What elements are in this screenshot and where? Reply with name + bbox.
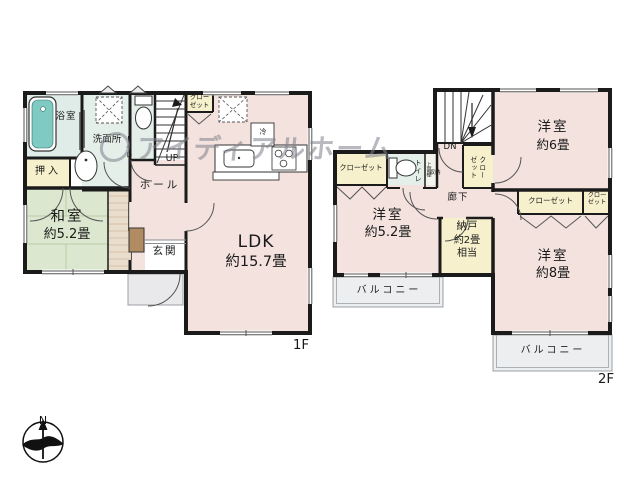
ldk-name: LDK xyxy=(196,231,316,253)
toilet-1f-icon xyxy=(135,96,152,129)
room8-name: 洋室 xyxy=(503,248,603,266)
closet-vert-col1: クロー xyxy=(477,149,486,187)
f1-ldk-floor xyxy=(186,93,310,333)
roof-vent-icon xyxy=(100,86,116,93)
ldk-label: LDK 約15.7畳 xyxy=(196,231,316,272)
room6-label: 洋室 約6畳 xyxy=(503,119,603,153)
room8-size: 約8畳 xyxy=(503,266,603,283)
balcony-left-label: バルコニー xyxy=(338,284,440,297)
closet-1f-label: クロー ゼット xyxy=(186,94,213,110)
oshiire-label: 押入 xyxy=(27,165,69,178)
closet-1f-line2: ゼット xyxy=(186,102,213,110)
ldk-size: 約15.7畳 xyxy=(196,253,316,272)
floorplan-canvas: N 浴室 洗面所 トイレ クロー ゼット UP ホール 玄関 押入 和室 約5.… xyxy=(0,0,640,480)
f2-floor-label: 2F xyxy=(591,371,621,389)
f1-porch xyxy=(128,274,183,306)
nando-label: 納戸 約2畳 相当 xyxy=(441,220,493,260)
bathtub-icon xyxy=(29,97,56,151)
stairs-up-label: UP xyxy=(158,153,186,165)
washitsu-name: 和室 xyxy=(24,208,110,227)
roof-vent-icon xyxy=(130,86,146,93)
nando-line1: 納戸 xyxy=(441,220,493,234)
shoe-cabinet-icon xyxy=(129,228,144,252)
genkan-label: 玄関 xyxy=(143,245,187,259)
nando-line3: 相当 xyxy=(441,247,493,260)
closet-2f-left-label: クローゼット xyxy=(336,163,386,172)
room52-label: 洋室 約5.2畳 xyxy=(338,207,438,241)
room6-name: 洋室 xyxy=(503,119,603,137)
basin-icon xyxy=(75,151,97,181)
compass-bird-icon xyxy=(22,436,64,451)
washitsu-label: 和室 約5.2畳 xyxy=(24,208,110,244)
f2-fixtures xyxy=(389,158,416,178)
stove-icon xyxy=(272,147,296,170)
storage-label: 収納 xyxy=(425,170,445,177)
stairs-dn-label: DN xyxy=(440,142,460,153)
room6-size: 約6畳 xyxy=(503,137,603,153)
toilet-1f-label: トイレ xyxy=(124,130,133,164)
closet-vert-col2: ゼット xyxy=(468,149,477,187)
washroom-label: 洗面所 xyxy=(85,134,129,146)
washing-machine-icon xyxy=(96,97,122,123)
closet-2f-big-label: クローゼット xyxy=(519,196,582,206)
room52-size: 約5.2畳 xyxy=(338,225,438,242)
toilet-2f-label: トイレ xyxy=(413,155,422,187)
toilet-2f-icon xyxy=(389,158,416,178)
f1-floor-label: 1F xyxy=(286,337,316,355)
closet-2f-small-label: クロー ゼット xyxy=(584,192,610,207)
hall-label: ホール xyxy=(134,179,186,193)
corridor-label: 廊下 xyxy=(443,192,473,204)
shelf-top-label: 上部棚 xyxy=(425,156,432,182)
bath-label: 浴室 xyxy=(48,111,84,123)
fridge-label: 冷 xyxy=(252,128,274,137)
room8-label: 洋室 約8畳 xyxy=(503,248,603,282)
hanging-cabinet-icon xyxy=(219,97,247,122)
nando-line2: 約2畳 xyxy=(441,234,493,247)
room52-name: 洋室 xyxy=(338,207,438,225)
closet-small-line2: ゼット xyxy=(584,199,610,206)
washitsu-size: 約5.2畳 xyxy=(24,227,110,244)
compass-icon: N xyxy=(22,414,64,462)
balcony-right-label: バルコニー xyxy=(497,344,609,357)
